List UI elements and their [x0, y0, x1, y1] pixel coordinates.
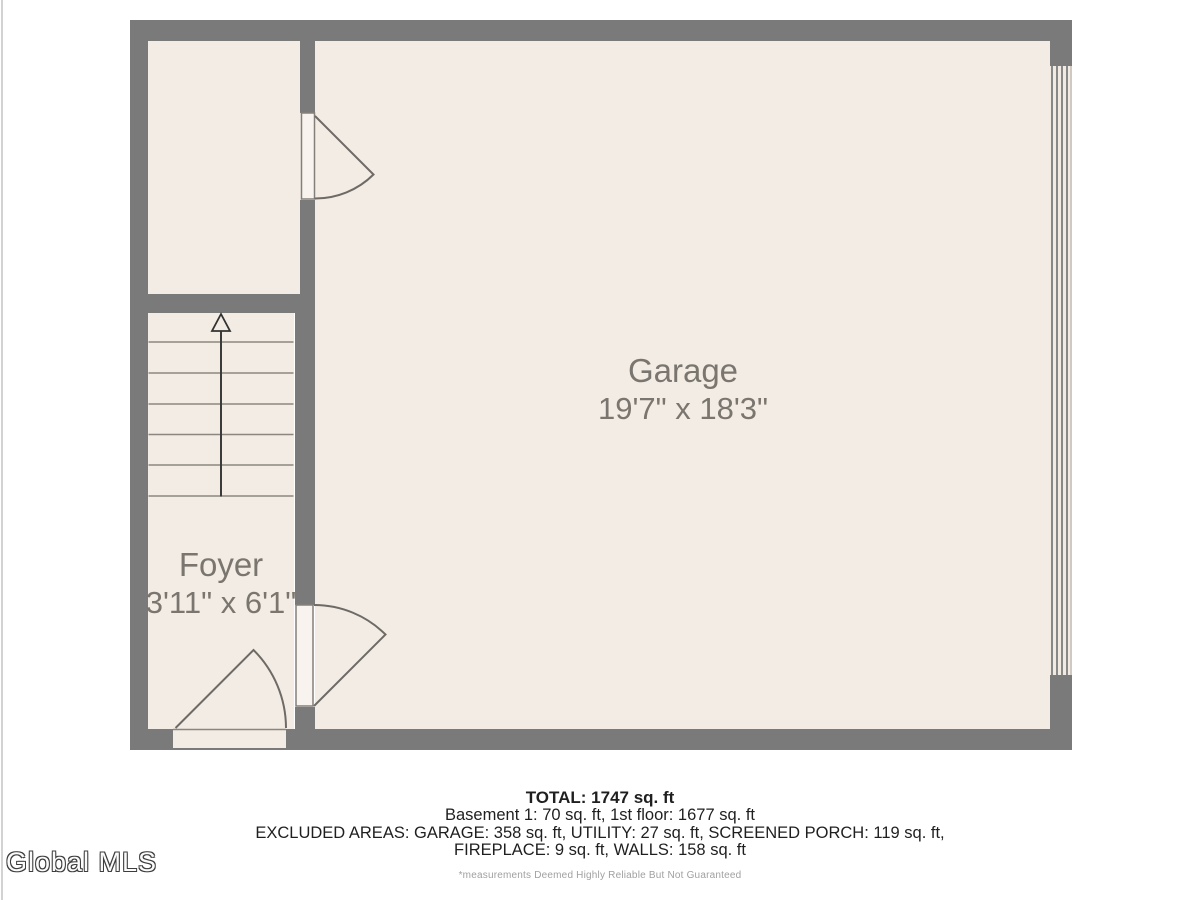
summary-total: TOTAL: 1747 sq. ft	[0, 789, 1200, 807]
room-dims-foyer: 3'11" x 6'1"	[146, 585, 296, 622]
wall-left	[130, 20, 148, 750]
floorplan-drawing	[0, 0, 1200, 900]
wall-divider-below-door	[295, 707, 315, 750]
area-summary: TOTAL: 1747 sq. ft Basement 1: 70 sq. ft…	[0, 789, 1200, 881]
summary-excluded-2: FIREPLACE: 9 sq. ft, WALLS: 158 sq. ft	[0, 842, 1200, 860]
global-mls-watermark: Global MLS	[6, 847, 157, 878]
room-name-garage: Garage	[598, 352, 768, 391]
wall-top	[130, 20, 1072, 41]
garage-door-panel-icon	[1050, 66, 1072, 675]
wall-divider-mid	[300, 200, 315, 294]
room-dims-garage: 19'7" x 18'3"	[598, 391, 768, 428]
summary-floors: Basement 1: 70 sq. ft, 1st floor: 1677 s…	[0, 807, 1200, 825]
wall-right-bottom	[1050, 675, 1072, 750]
room-label-garage: Garage 19'7" x 18'3"	[598, 352, 768, 428]
room-label-foyer: Foyer 3'11" x 6'1"	[146, 546, 296, 622]
wall-right-top	[1050, 20, 1072, 66]
floorplan-page: Garage 19'7" x 18'3" Foyer 3'11" x 6'1" …	[0, 0, 1200, 900]
wall-hall	[148, 294, 315, 313]
upper-left-room-floor	[148, 41, 302, 294]
wall-divider-lower	[295, 313, 315, 605]
summary-disclaimer: *measurements Deemed Highly Reliable But…	[0, 870, 1200, 881]
summary-excluded-1: EXCLUDED AREAS: GARAGE: 358 sq. ft, UTIL…	[0, 825, 1200, 843]
wall-divider-upper	[300, 20, 315, 113]
room-name-foyer: Foyer	[146, 546, 296, 585]
